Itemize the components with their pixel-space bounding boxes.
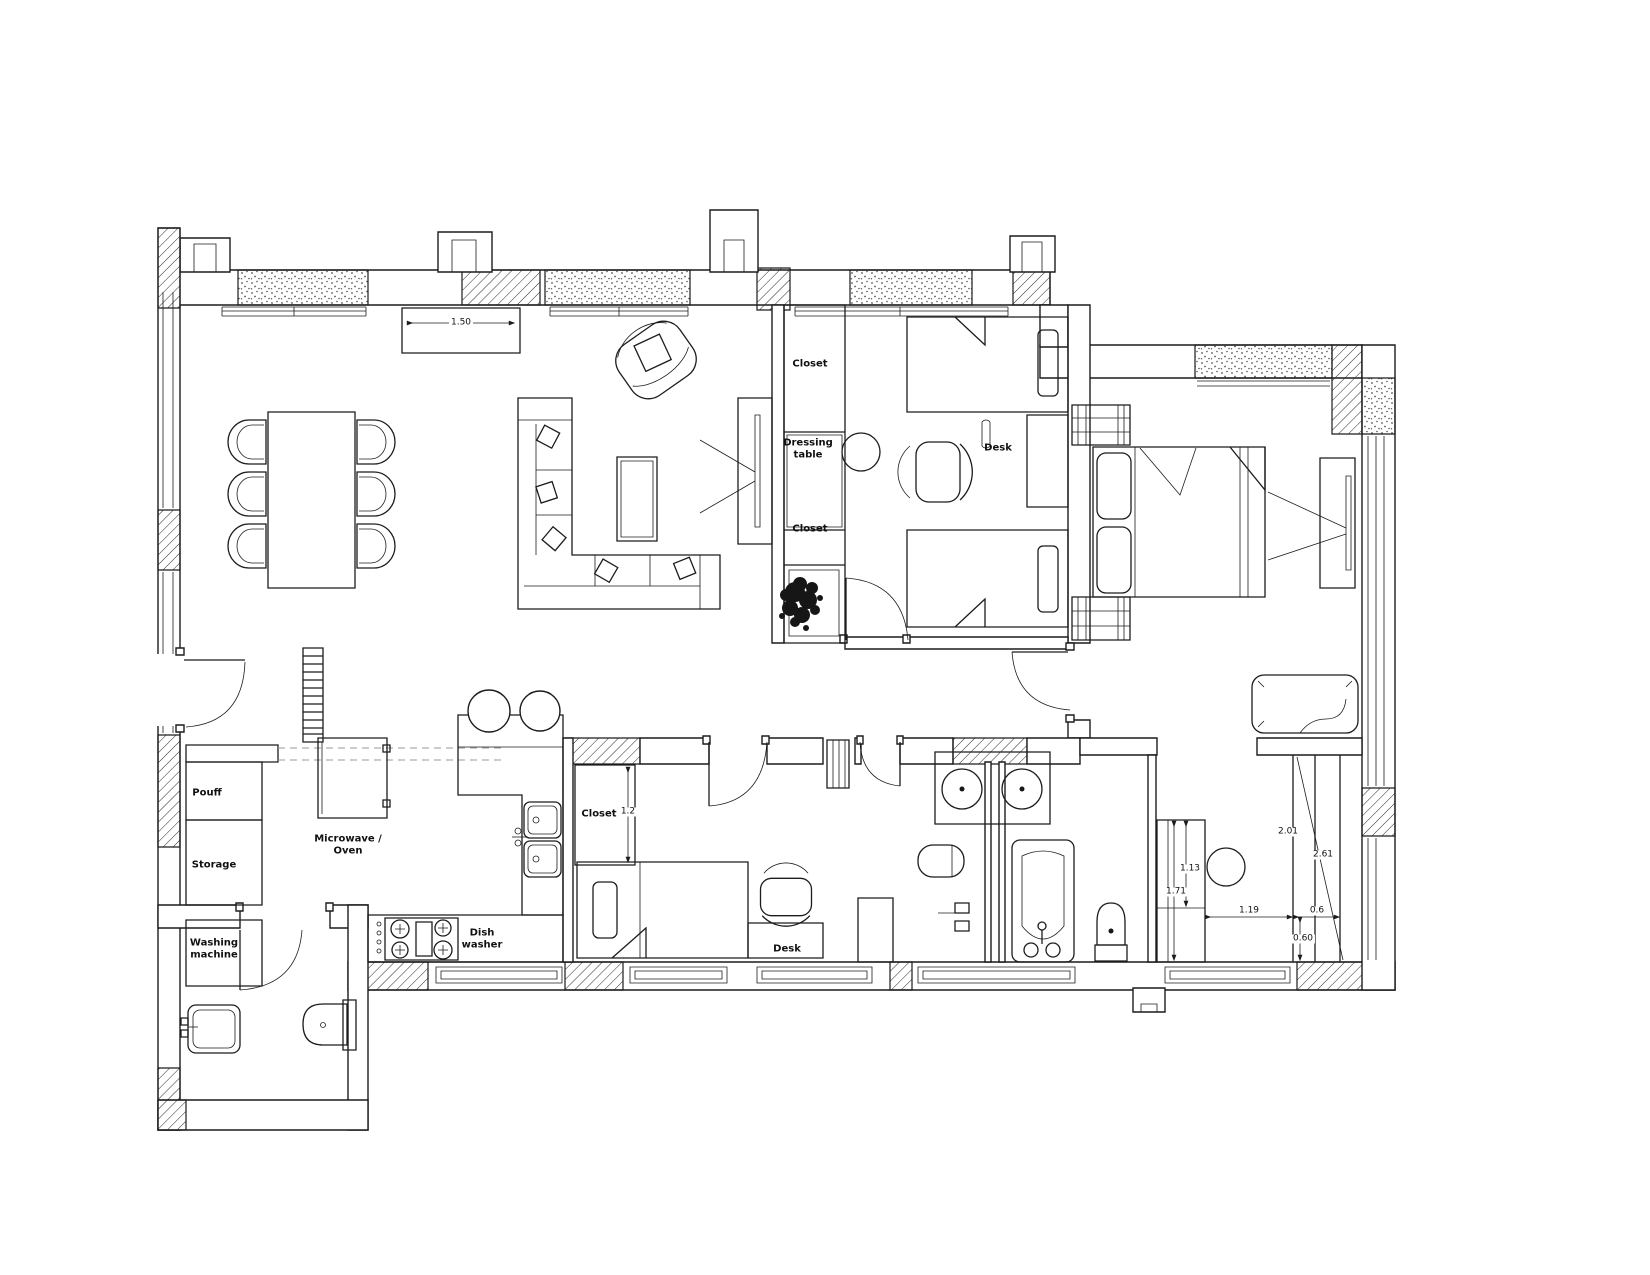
master-bedroom: [1072, 405, 1358, 733]
bathtub: [1012, 840, 1074, 962]
dim-119: 1.19: [1237, 907, 1261, 916]
dining-table: [268, 412, 355, 588]
right-wall: [1040, 305, 1395, 990]
entry-door: [184, 660, 245, 727]
radiator: [303, 648, 323, 742]
label-microwave-oven: Microwave / Oven: [306, 834, 390, 857]
plant: [779, 570, 839, 636]
bar-stool: [468, 690, 510, 732]
bench: [1252, 675, 1358, 733]
dim-06: 0.6: [1308, 907, 1326, 916]
label-dish-washer: Dish washer: [456, 928, 508, 951]
overhead-cabinet-dashed: [278, 748, 505, 760]
bar-stool: [520, 691, 560, 731]
master-door: [1012, 652, 1070, 710]
label-pouff: Pouff: [192, 787, 221, 799]
label-closet-kids-bottom: Closet: [792, 523, 827, 535]
double-bed: [1093, 447, 1265, 597]
floor-plan-page: Closet Dressing table Closet Desk Pouff …: [0, 0, 1650, 1275]
label-desk-kids: Desk: [984, 442, 1012, 454]
coffee-table: [617, 457, 657, 541]
kids-desk: [1027, 415, 1068, 507]
label-closet-bedroom2: Closet: [581, 808, 616, 820]
label-washing-machine: Washing machine: [178, 938, 250, 961]
floor-plan-drawing: [0, 0, 1650, 1275]
master-tv-cabinet: [1268, 458, 1355, 588]
sofa-pillows: [536, 425, 696, 582]
label-dressing-table: Dressing table: [780, 438, 836, 461]
bedroom2-chair: [761, 863, 812, 926]
dining-chairs: [228, 420, 395, 568]
bedroom2: [575, 765, 823, 958]
tv-unit: [402, 308, 520, 353]
label-closet-kids-top: Closet: [792, 358, 827, 370]
top-windows: [222, 307, 1008, 316]
laundry-sink: [181, 1005, 240, 1053]
dim-201: 2.01: [1276, 828, 1300, 837]
bedroom2-door: [709, 742, 767, 806]
kids-room-door: [846, 578, 908, 640]
round-stool: [842, 433, 880, 471]
bedroom2-bed: [577, 862, 748, 958]
wall-hung-toilet: [918, 845, 969, 931]
kitchen-peninsula: [458, 690, 563, 915]
closet-stool: [1207, 848, 1245, 886]
dim-113: 1.13: [1178, 865, 1202, 874]
bottom-wall: [348, 962, 1395, 1012]
hob: [377, 918, 458, 960]
oven-cabinet: [318, 738, 390, 818]
kitchen-sink: [512, 802, 561, 877]
armchair: [605, 310, 704, 407]
kids-desk-chair: [898, 420, 990, 502]
label-desk-bedroom2: Desk: [773, 943, 801, 955]
dim-tv-unit: 1.50: [449, 319, 473, 328]
dim-closet-b2: 1.2: [619, 808, 637, 817]
pocket-door: [827, 740, 849, 788]
interior-walls: [563, 305, 1362, 962]
dim-261: 2.61: [1311, 851, 1335, 860]
label-storage: Storage: [192, 859, 236, 871]
bathroom: [858, 752, 1127, 962]
wall-protrusion: [1133, 988, 1165, 1012]
kids-bed-2: [907, 530, 1068, 627]
l-shaped-sofa: [518, 398, 720, 609]
top-wall: [160, 210, 1055, 316]
bathroom-door: [860, 742, 900, 786]
dim-060: 0.60: [1291, 935, 1315, 944]
dim-171: 1.71: [1164, 888, 1188, 897]
hall-cabinets: [186, 745, 505, 905]
toilet: [1095, 903, 1127, 961]
left-wall: [156, 228, 184, 1130]
living-tv-panel: [700, 398, 772, 544]
shower-cabinet: [858, 898, 893, 962]
